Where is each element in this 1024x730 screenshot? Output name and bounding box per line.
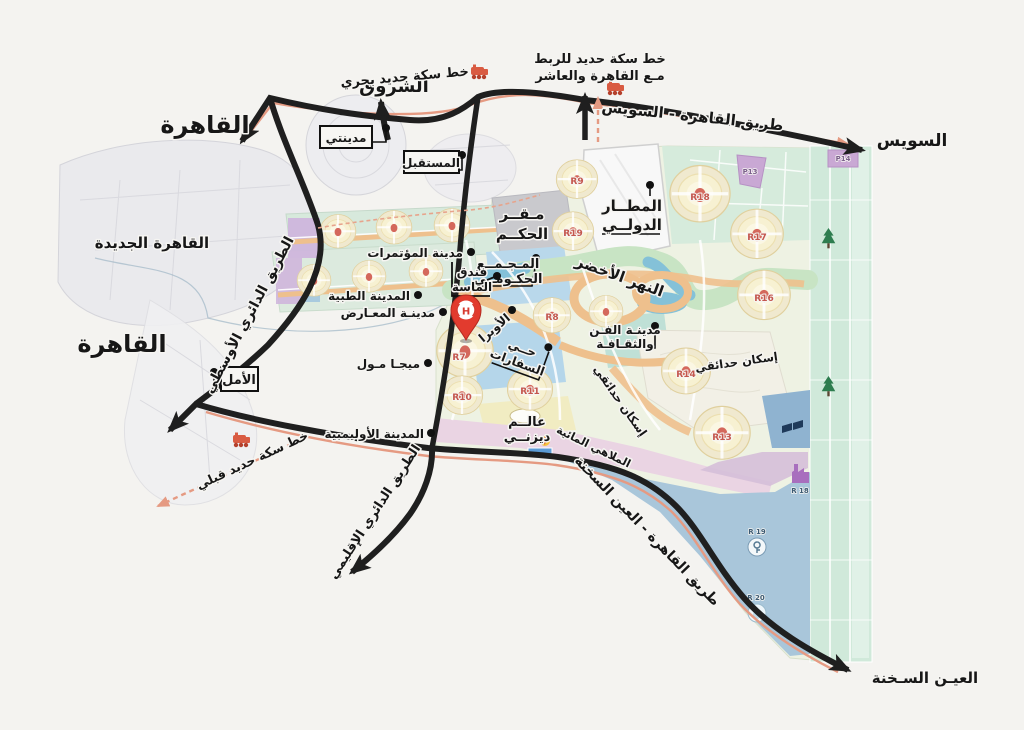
utility-icon <box>748 538 766 556</box>
district-label: R10 <box>452 393 471 403</box>
district-label: R7 <box>452 353 465 363</box>
district-label: P14 <box>836 155 851 163</box>
disney-label-1: عالــم <box>508 415 546 430</box>
regional-ring-road <box>352 448 432 572</box>
district-label: R16 <box>754 294 773 304</box>
massa-label-2: الماسة <box>452 280 492 294</box>
arts-label-2: والثقـافـة <box>596 337 653 352</box>
train-icon <box>471 65 488 80</box>
cairo-mid-label: القاهرة <box>77 330 166 358</box>
district-label: R9 <box>570 177 583 187</box>
massa-label-1: فندق <box>457 265 487 279</box>
district-label: P13 <box>743 168 758 176</box>
airport-label-1: المطــار <box>601 197 662 215</box>
agricultural-strip <box>810 146 872 662</box>
madinaty-label: مدينتي <box>326 131 367 145</box>
district-label: R17 <box>747 233 766 243</box>
district-label: R13 <box>712 433 731 443</box>
airport-label-2: الدولــي <box>602 216 662 234</box>
mostakbal-callout: المستقبل <box>402 151 466 173</box>
pin-brand-letter: H <box>462 307 470 318</box>
mega-mall-label: ميجـا مـول <box>357 357 420 372</box>
disney-label-2: ديزنــي <box>504 430 551 445</box>
district-label: R19 <box>563 229 582 239</box>
olympic-city-label: المدينة الأوليمبية <box>325 426 425 442</box>
district-label: R11 <box>520 387 539 397</box>
cairo-suez-label: طريق القاهرة - السويس <box>601 98 784 135</box>
rail-link-label-2: مـع القاهرة والعاشر <box>534 69 664 84</box>
suez-label: السويس <box>877 131 948 151</box>
arts-label-1: مدينـة الفـن <box>589 323 660 337</box>
expo-city-label: مدينـة المعـارض <box>341 306 435 320</box>
zone-label: R 19 <box>748 528 766 536</box>
district-label: R8 <box>545 313 558 323</box>
ain-sokhna-label: العيـن السـخنة <box>872 669 978 687</box>
industrial-zone-label: R 18 <box>791 487 809 495</box>
nac-masterplan-map: R7 R8 R9 R19 R10 R11 R13 R14 R16 R17 R18… <box>0 0 1024 730</box>
cairo-top-label: القاهرة <box>160 111 249 139</box>
map-canvas: R7 R8 R9 R19 R10 R11 R13 R14 R16 R17 R18… <box>0 0 1024 730</box>
conferences-label: مدينة المؤتمرات <box>367 246 463 261</box>
mostakbal-label: المستقبل <box>402 156 460 170</box>
rail-link-label-1: خط سكة حديد للربط <box>534 52 665 67</box>
gov-hq-label-1: مـقــر <box>499 205 545 223</box>
new-cairo-label: القاهرة الجديدة <box>95 234 209 252</box>
medical-city-label: المدينة الطبية <box>328 289 410 303</box>
district-label: R14 <box>676 370 695 380</box>
district-label: R18 <box>690 193 709 203</box>
gov-hq-label-2: الحكــم <box>496 225 548 243</box>
